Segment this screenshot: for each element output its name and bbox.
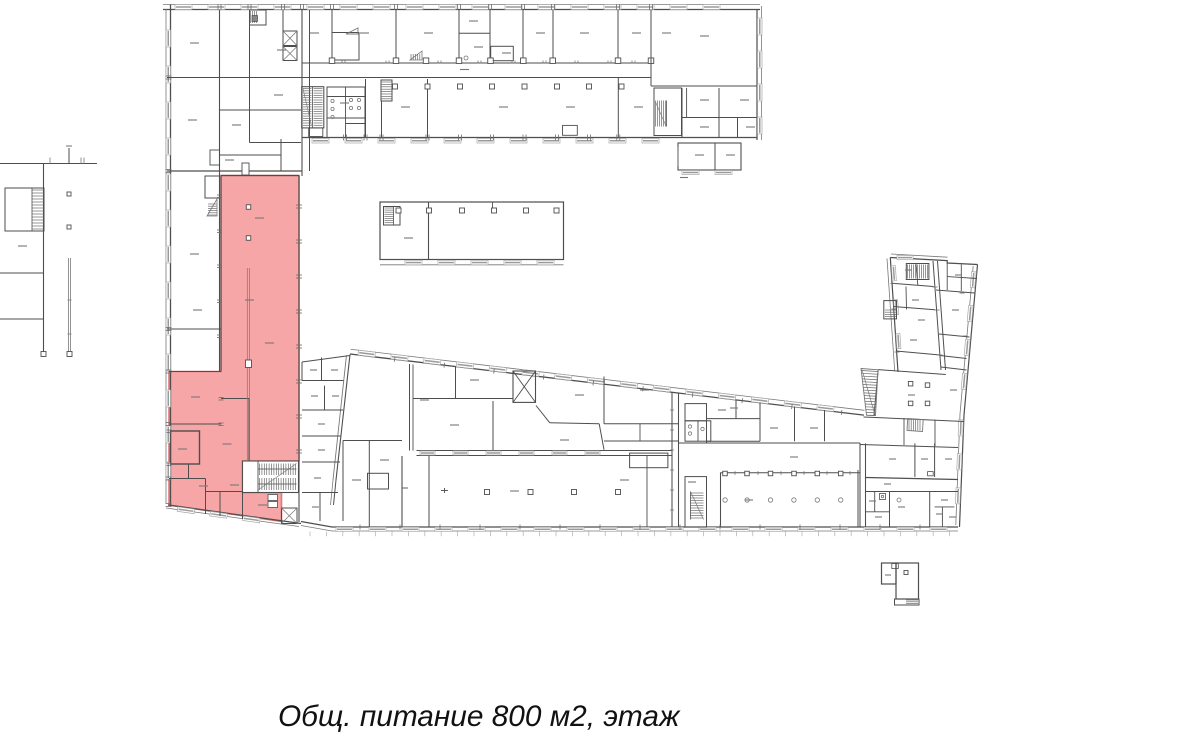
svg-text:Общ. питание 800 м2, этаж: Общ. питание 800 м2, этаж xyxy=(278,700,681,733)
